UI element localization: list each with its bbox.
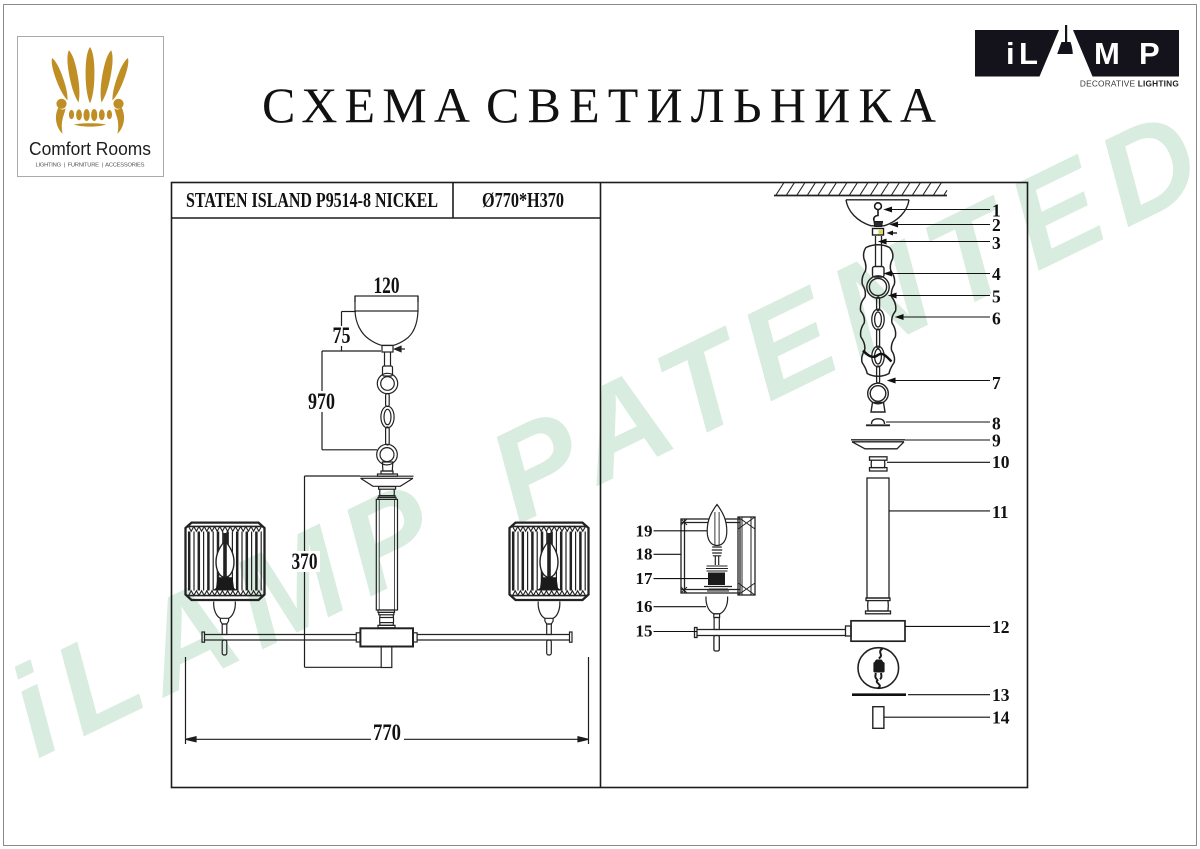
- svg-text:11: 11: [992, 502, 1009, 522]
- svg-text:3: 3: [992, 233, 1001, 253]
- svg-text:5: 5: [992, 286, 1001, 306]
- svg-text:СХЕМА: СХЕМА: [262, 77, 470, 133]
- svg-text:4: 4: [992, 264, 1001, 284]
- svg-text:7: 7: [992, 373, 1001, 393]
- svg-text:2: 2: [992, 215, 1001, 235]
- svg-text:DECORATIVE LIGHTING: DECORATIVE LIGHTING: [1080, 79, 1179, 89]
- svg-text:13: 13: [992, 685, 1010, 705]
- svg-text:LIGHTING | FURNITURE | ACC: LIGHTING | FURNITURE | ACCESSORIES: [36, 163, 145, 169]
- svg-text:75: 75: [333, 323, 351, 348]
- svg-text:15: 15: [636, 622, 653, 641]
- svg-text:17: 17: [636, 569, 654, 588]
- svg-text:СВЕТИЛЬНИКА: СВЕТИЛЬНИКА: [486, 77, 936, 133]
- svg-text:10: 10: [992, 452, 1010, 472]
- svg-text:6: 6: [992, 309, 1001, 329]
- svg-text:M: M: [1094, 36, 1120, 71]
- svg-text:19: 19: [636, 522, 653, 541]
- svg-text:P: P: [1139, 36, 1160, 71]
- svg-text:L: L: [1019, 36, 1038, 71]
- svg-text:120: 120: [374, 273, 400, 298]
- svg-text:18: 18: [636, 545, 653, 564]
- svg-text:970: 970: [308, 389, 335, 414]
- svg-text:14: 14: [992, 707, 1010, 727]
- svg-text:12: 12: [992, 617, 1010, 637]
- svg-text:Comfort Rooms: Comfort Rooms: [29, 139, 151, 159]
- svg-text:Ø770*H370: Ø770*H370: [482, 188, 564, 212]
- svg-text:770: 770: [373, 720, 401, 745]
- svg-text:STATEN ISLAND P9514-8 NICKEL: STATEN ISLAND P9514-8 NICKEL: [186, 188, 438, 212]
- svg-text:9: 9: [992, 430, 1001, 450]
- svg-text:16: 16: [636, 597, 653, 616]
- svg-text:370: 370: [292, 549, 318, 574]
- svg-text:i: i: [1006, 36, 1015, 71]
